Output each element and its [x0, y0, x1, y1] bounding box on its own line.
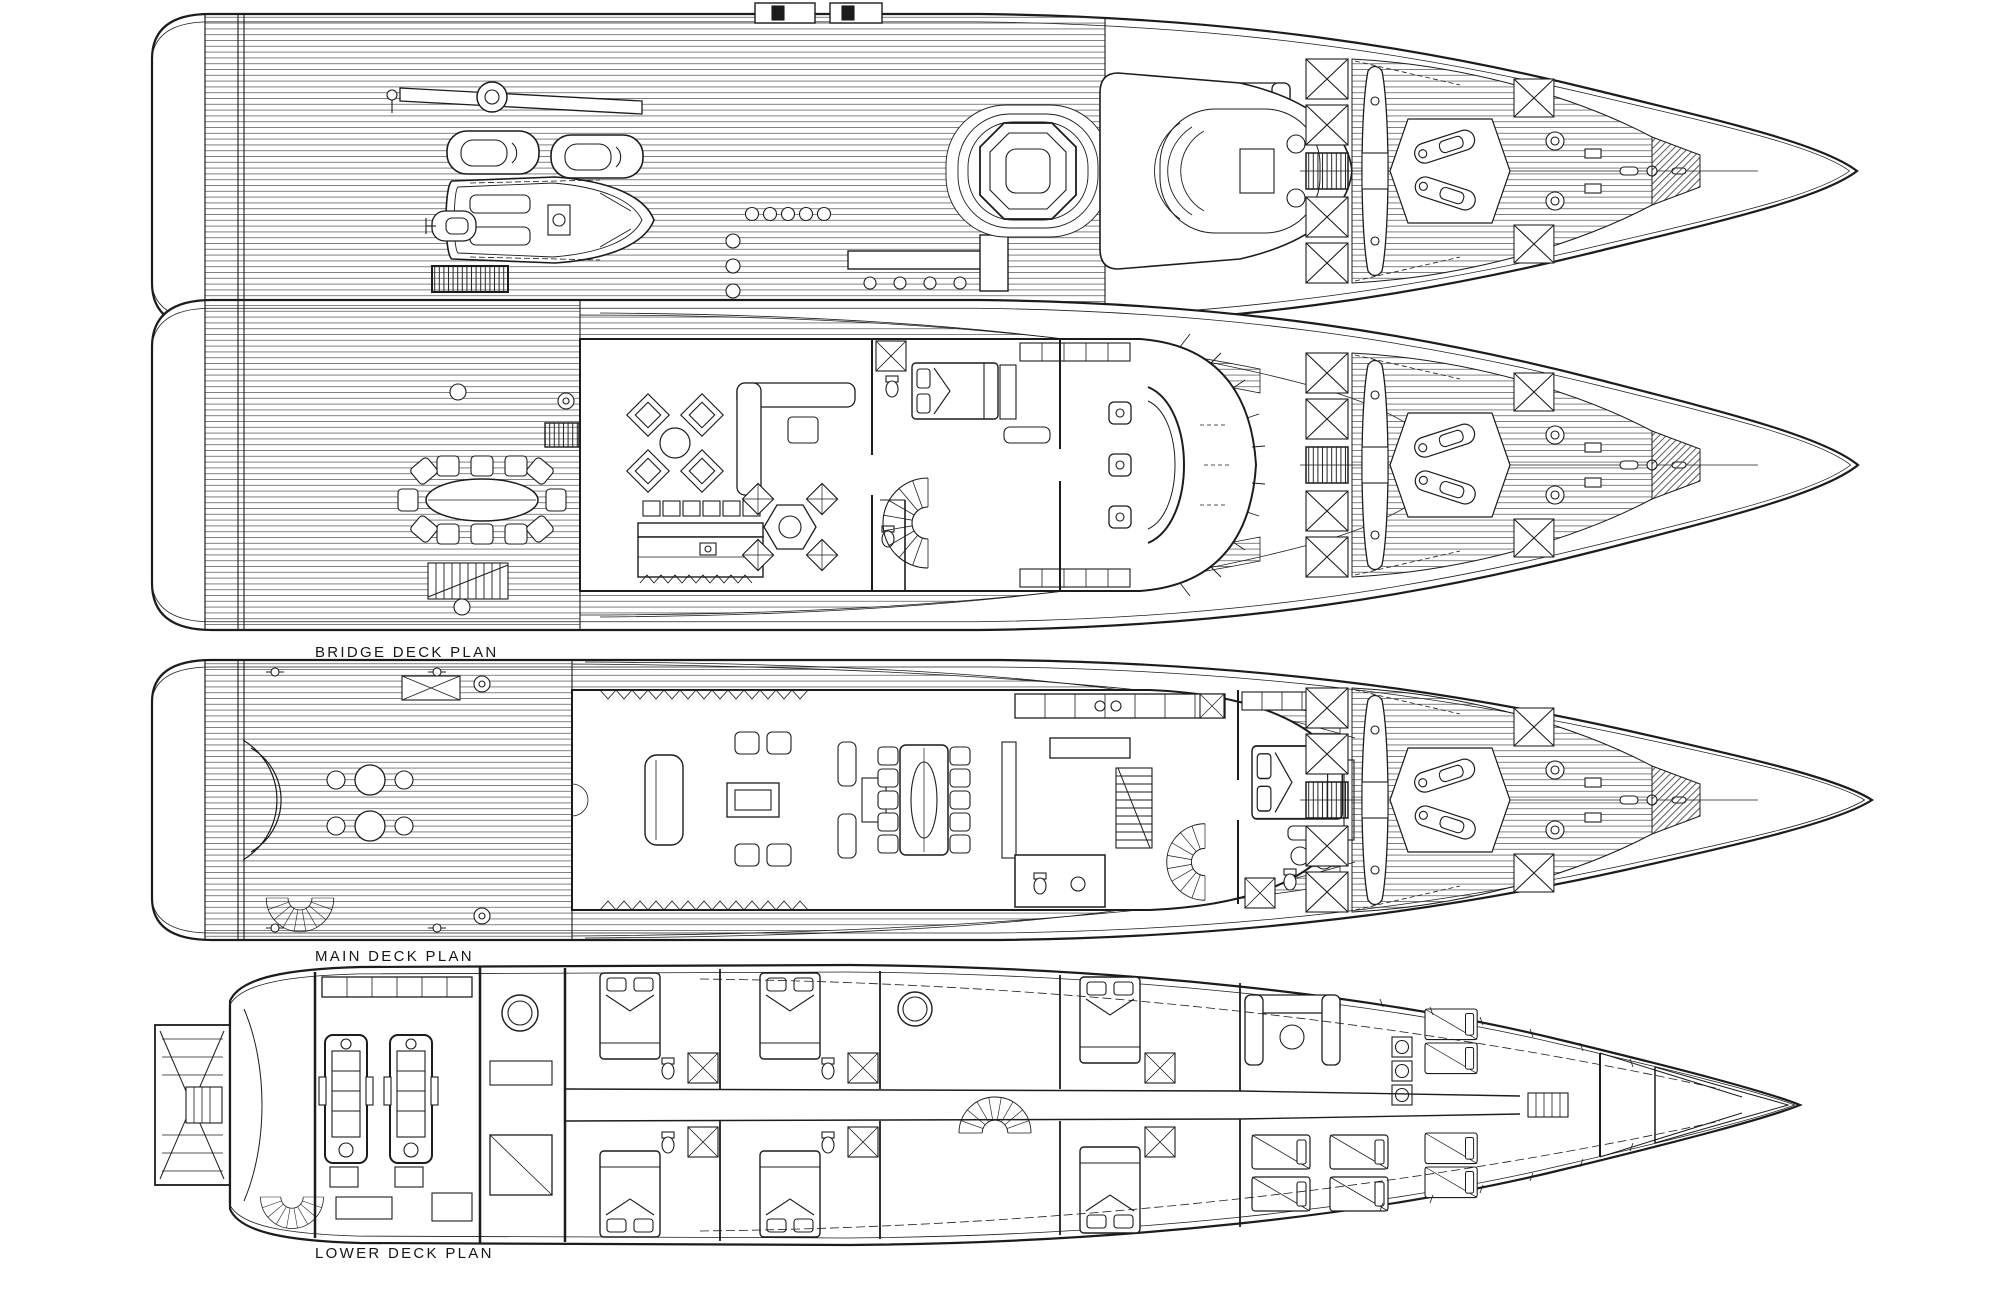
swim-platform — [155, 1025, 230, 1185]
skylounge-bar — [638, 501, 763, 583]
deck-label-main: MAIN DECK PLAN — [315, 948, 474, 965]
bridge-deck-plan — [151, 300, 1858, 630]
drawing-sheet: SUN DECK PLAN — [0, 0, 2000, 1294]
interior-stairs — [1116, 768, 1152, 848]
day-head — [1015, 855, 1105, 907]
exterior-stairs — [428, 563, 508, 599]
deck-grate — [432, 266, 508, 292]
deck-label-bridge: BRIDGE DECK PLAN — [315, 644, 499, 661]
jacuzzi — [946, 105, 1110, 237]
pwc-cradle — [447, 131, 539, 174]
bow-pwc-bay — [1300, 688, 1758, 912]
bow-pwc-bay — [1300, 59, 1758, 283]
sun-deck-plan — [151, 3, 1857, 339]
main-deck-plan — [151, 660, 1872, 940]
lower-deck-plan — [155, 965, 1800, 1245]
pwc-cradle — [551, 135, 643, 178]
bow-pwc-bay — [1300, 353, 1758, 577]
deck-label-lower: LOWER DECK PLAN — [315, 1245, 494, 1262]
